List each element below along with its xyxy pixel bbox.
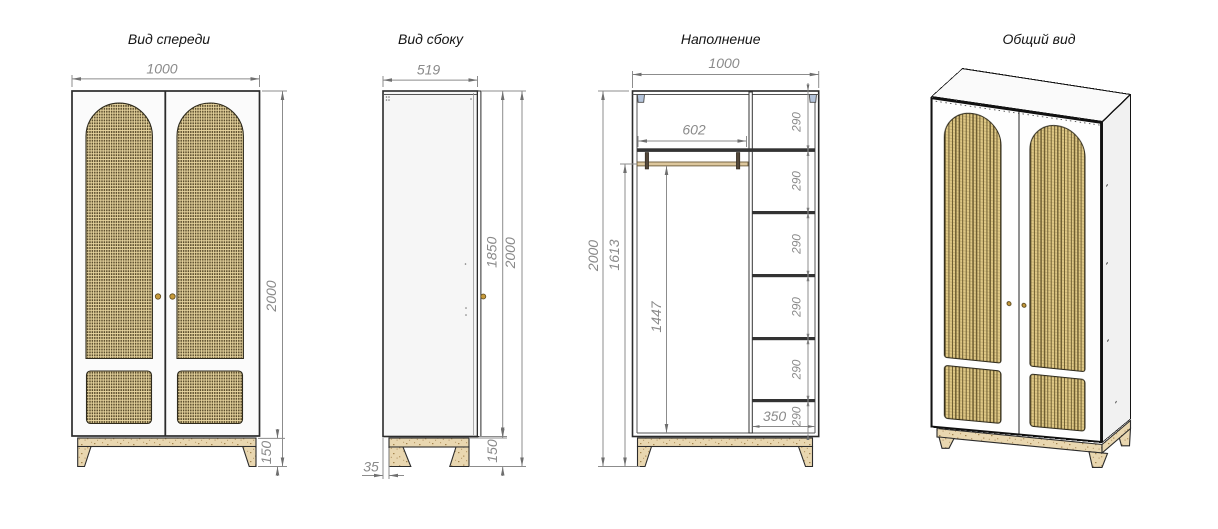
svg-text:Общий вид: Общий вид	[1003, 31, 1076, 47]
svg-text:150: 150	[484, 439, 500, 463]
svg-text:290: 290	[790, 359, 804, 380]
svg-text:35: 35	[363, 459, 379, 475]
svg-text:1613: 1613	[606, 239, 622, 270]
svg-text:602: 602	[682, 122, 706, 138]
svg-text:150: 150	[258, 441, 274, 465]
svg-text:1000: 1000	[708, 55, 739, 71]
svg-text:519: 519	[417, 62, 441, 78]
svg-text:2000: 2000	[263, 280, 279, 312]
svg-text:Вид сбоку: Вид сбоку	[398, 31, 464, 47]
svg-text:290: 290	[790, 171, 804, 192]
svg-text:1447: 1447	[648, 300, 664, 332]
svg-text:Вид спереди: Вид спереди	[128, 31, 210, 47]
svg-text:1000: 1000	[146, 61, 177, 77]
svg-text:290: 290	[790, 406, 804, 427]
svg-text:290: 290	[790, 234, 804, 255]
svg-text:350: 350	[763, 408, 787, 424]
svg-text:290: 290	[790, 112, 804, 133]
svg-text:Наполнение: Наполнение	[681, 31, 761, 47]
svg-text:2000: 2000	[585, 240, 601, 272]
svg-text:290: 290	[790, 297, 804, 318]
svg-text:2000: 2000	[502, 237, 518, 269]
svg-text:1850: 1850	[484, 237, 500, 268]
